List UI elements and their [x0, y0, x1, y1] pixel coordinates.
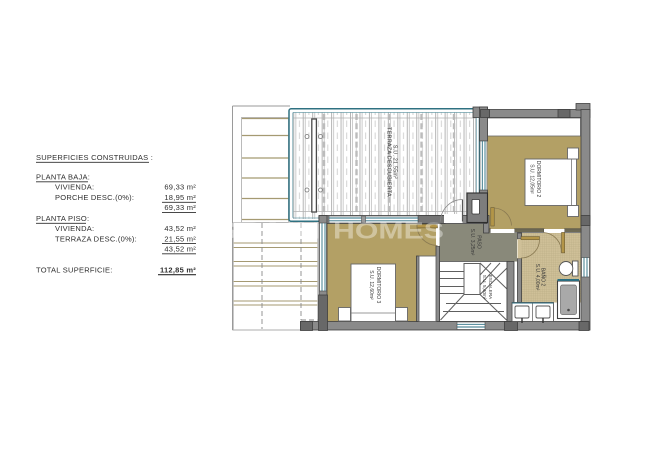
svg-text:PASO: PASO: [476, 235, 482, 249]
svg-text:TOTAL SUPERFICIE:: TOTAL SUPERFICIE:: [36, 265, 113, 274]
svg-text:69,33 m²: 69,33 m²: [164, 183, 196, 192]
svg-text:ESCALERA: ESCALERA: [488, 275, 493, 300]
svg-text:S.U. 12,05m²: S.U. 12,05m²: [529, 164, 535, 194]
svg-text:HOMES: HOMES: [333, 218, 444, 244]
svg-text:43,52 m²: 43,52 m²: [164, 245, 196, 254]
svg-text:43,52 m²: 43,52 m²: [164, 224, 196, 233]
svg-text:21,55 m²: 21,55 m²: [164, 234, 196, 243]
svg-text:PORCHE DESC.(0%):: PORCHE DESC.(0%):: [55, 193, 134, 202]
svg-text:TERRAZA DESC.(0%):: TERRAZA DESC.(0%):: [55, 234, 137, 243]
svg-text:VIVIENDA:: VIVIENDA:: [55, 224, 94, 233]
svg-text:DORMITORIO 3: DORMITORIO 3: [375, 267, 381, 304]
svg-text:S.U. 3,25m²: S.U. 3,25m²: [469, 229, 475, 256]
svg-text:18,95 m²: 18,95 m²: [164, 193, 196, 202]
svg-text:112,85 m²: 112,85 m²: [160, 265, 196, 274]
svg-text:DORMITORIO 2: DORMITORIO 2: [535, 161, 541, 198]
svg-text:TERRAZA DESCUBIERTA: TERRAZA DESCUBIERTA: [386, 127, 392, 197]
svg-text:PLANTA BAJA:: PLANTA BAJA:: [36, 173, 90, 182]
svg-text:S.U. 21,55m²: S.U. 21,55m²: [392, 145, 398, 179]
svg-text:VIVIENDA:: VIVIENDA:: [55, 183, 94, 192]
svg-text:S.U. 4,00m²: S.U. 4,00m²: [534, 264, 540, 291]
svg-text:SUPERFICIES CONSTRUIDAS :: SUPERFICIES CONSTRUIDAS :: [36, 153, 153, 162]
svg-text:SPAIN: SPAIN: [215, 218, 321, 244]
svg-text:PLANTA PISO:: PLANTA PISO:: [36, 214, 89, 223]
svg-text:S.U. 5,40m²: S.U. 5,40m²: [482, 275, 487, 300]
svg-text:69,33 m²: 69,33 m²: [164, 203, 196, 212]
svg-text:S.U. 12,60m²: S.U. 12,60m²: [368, 270, 374, 300]
